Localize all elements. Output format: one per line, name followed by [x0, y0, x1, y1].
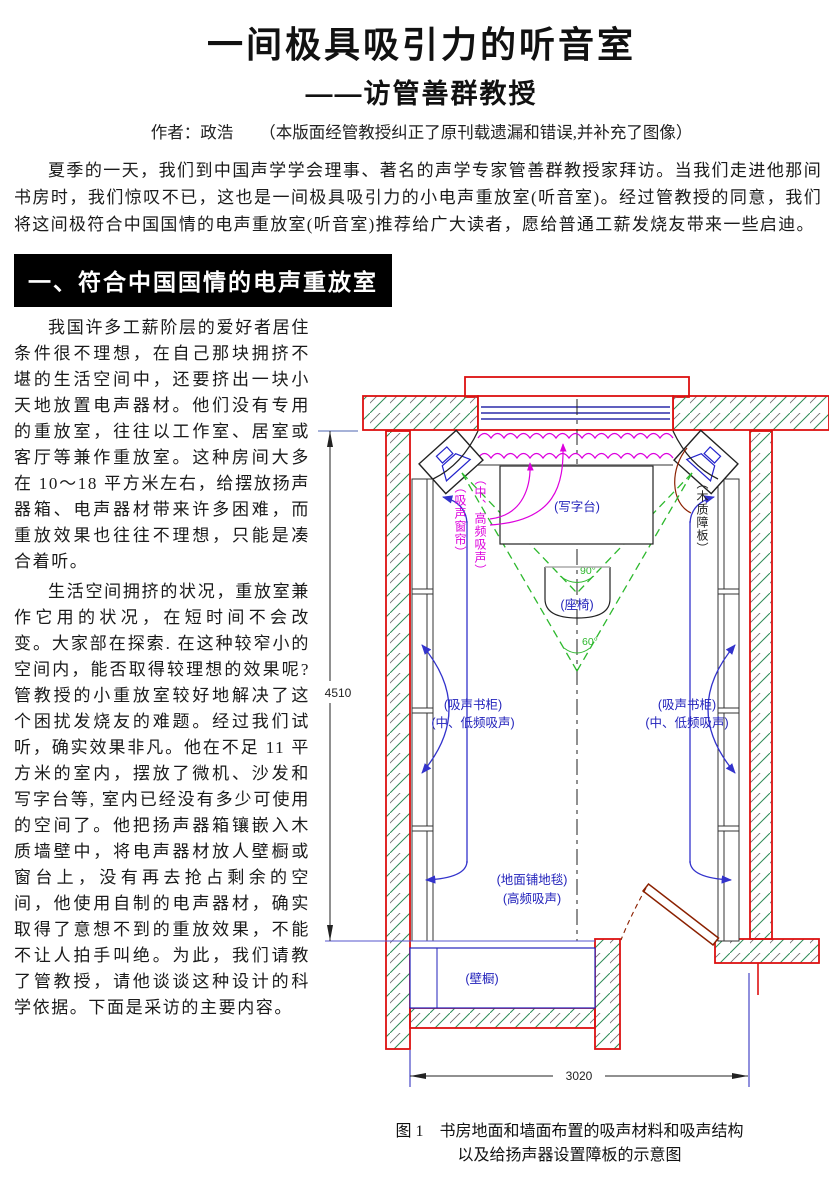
figure-caption-line2: 以及给扬声器设置障板的示意图 — [310, 1144, 829, 1168]
angle-60-label: 60° — [582, 636, 598, 648]
bookcase-left-label: (吸声书柜) — [444, 698, 502, 712]
closet-label: (壁橱) — [465, 971, 498, 986]
chair-label: (座椅) — [560, 597, 593, 612]
door-swing-arc — [621, 888, 646, 940]
page-title: 一间极具吸引力的听音室 — [14, 16, 829, 68]
dim-height-label: 4510 — [325, 686, 352, 700]
wall-bottom — [410, 1008, 595, 1028]
page-subtitle: ——访管善群教授 — [14, 72, 829, 111]
curtain-label: （吸声窗帘） — [453, 481, 467, 559]
article-page: 一间极具吸引力的听音室 ——访管善群教授 作者：政浩（本版面经管教授纠正了原刊载… — [0, 0, 829, 1177]
baffle-label: （木质障板） — [695, 477, 709, 555]
article-body: 90° 60° (写字台) (座椅) — [14, 315, 829, 1177]
carpet-label: (地面铺地毯) — [497, 873, 568, 887]
wall-right — [750, 431, 772, 939]
closet — [410, 948, 595, 1008]
bookcase-left — [412, 479, 433, 941]
door-panel — [643, 884, 719, 945]
section-1-heading: 一、符合中国国情的电声重放室 — [14, 254, 392, 307]
curtain-freq-label: （中、高频吸声） — [473, 473, 487, 577]
dim-width-label: 3020 — [566, 1069, 593, 1083]
figure-caption: 图 1 书房地面和墙面布置的吸声材料和吸声结构 以及给扬声器设置障板的示意图 — [310, 1120, 829, 1168]
wall-left — [386, 431, 410, 1049]
bookcase-right-freq-label: (中、低频吸声) — [645, 715, 728, 730]
room-diagram: 90° 60° (写字台) (座椅) — [310, 373, 829, 1091]
author: 作者：政浩 — [151, 123, 234, 142]
curtain-waves — [478, 434, 673, 459]
desk-label: (写字台) — [554, 499, 600, 514]
figure-1: 90° 60° (写字台) (座椅) — [310, 345, 829, 1168]
wall-top-left — [363, 396, 478, 430]
carpet-freq-label: (高频吸声) — [503, 891, 561, 906]
bookcase-left-freq-label: (中、低频吸声) — [431, 715, 514, 730]
bay-window-outline — [465, 377, 689, 397]
dimension-height: 4510 — [318, 431, 358, 941]
wall-right-foot — [715, 939, 819, 963]
bookcase-right-label: (吸声书柜) — [658, 698, 716, 712]
byline: 作者：政浩（本版面经管教授纠正了原刊载遗漏和错误,并补充了图像） — [14, 119, 829, 143]
figure-caption-line1: 图 1 书房地面和墙面布置的吸声材料和吸声结构 — [310, 1120, 829, 1144]
wall-top-right — [673, 396, 829, 430]
editor-note: （本版面经管教授纠正了原刊载遗漏和错误,并补充了图像） — [259, 123, 692, 142]
bookcase-right — [718, 479, 739, 941]
intro-paragraph: 夏季的一天，我们到中国声学学会理事、著名的声学专家管善群教授家拜访。当我们走进他… — [14, 157, 822, 238]
door-jamb — [595, 939, 620, 1049]
